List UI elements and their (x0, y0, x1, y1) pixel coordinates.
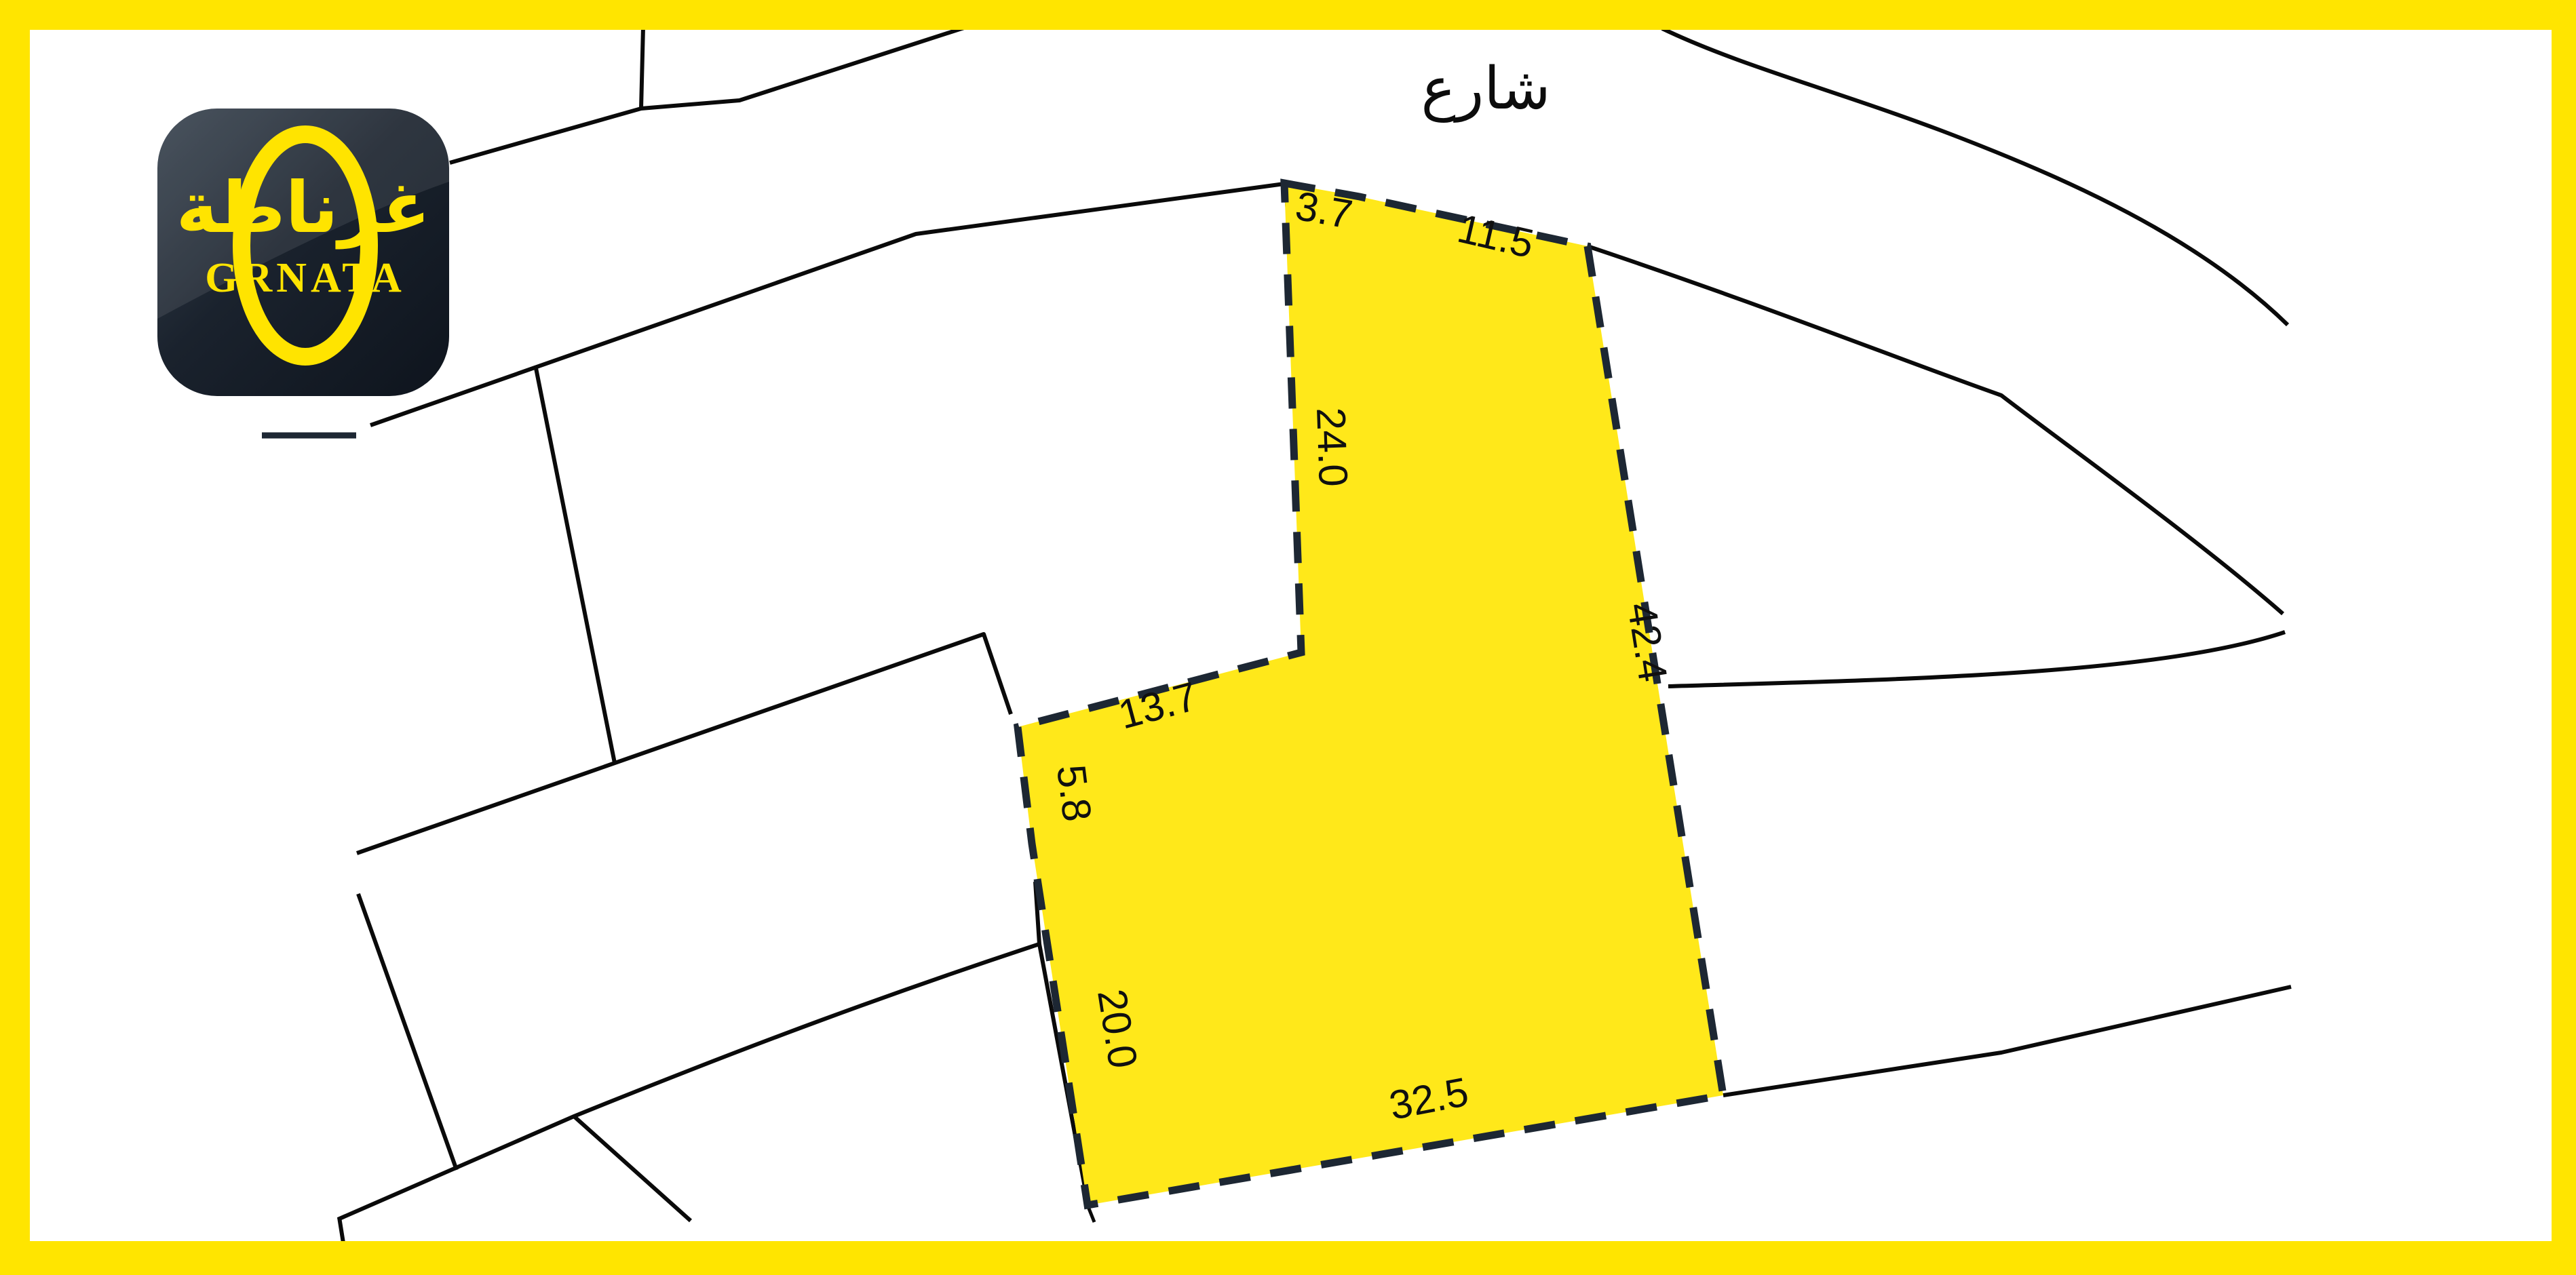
grnata-logo: غرناطة GRNATA (157, 109, 449, 396)
plot-map-canvas: 3.7 11.5 24.0 42.4 13.7 5.8 20.0 32.5 شا… (0, 0, 2576, 1275)
logo-brand-text: GRNATA (205, 255, 405, 301)
dimension-label: 24.0 (1308, 407, 1356, 488)
plot-map-page: { "title_note": "Cadastral land plot map… (0, 0, 2576, 1275)
dimension-label: 3.7 (1292, 183, 1356, 237)
top-divider-line (641, 27, 643, 109)
frame-bottom (0, 1241, 2576, 1275)
dimension-label: 5.8 (1048, 762, 1100, 824)
frame-right (2552, 0, 2576, 1275)
logo-arabic-text: غرناطة (176, 166, 431, 249)
frame-top (0, 0, 2576, 30)
frame-left (0, 0, 30, 1275)
street-label: شارع (1421, 55, 1550, 123)
